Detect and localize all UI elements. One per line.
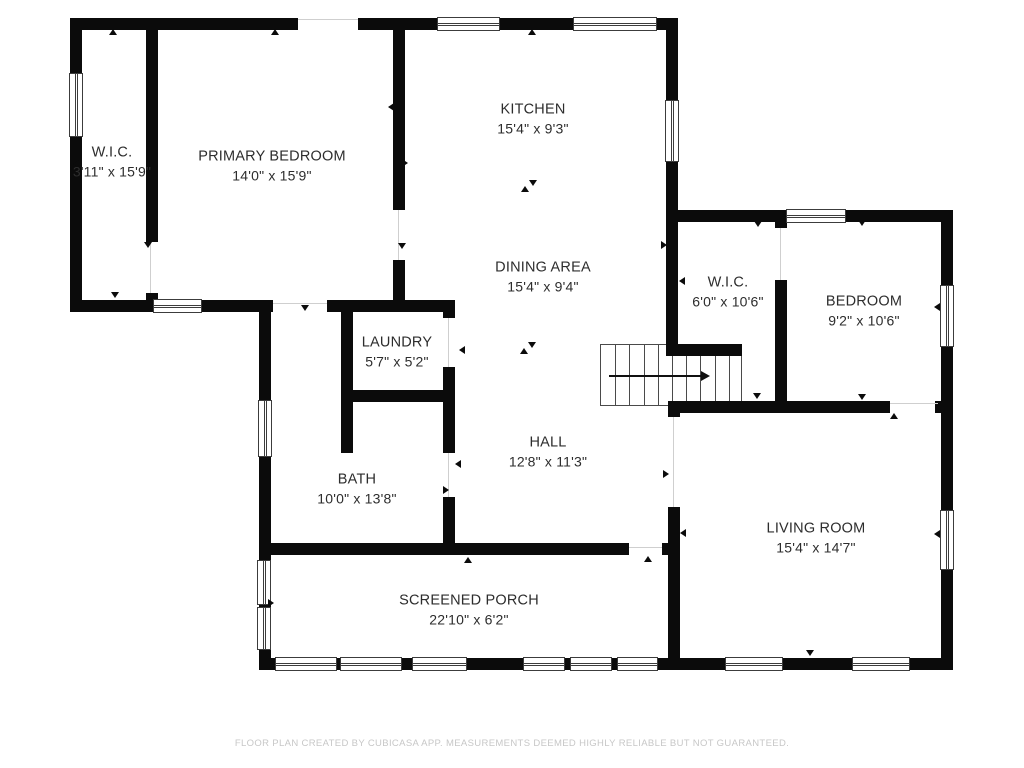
door-tick xyxy=(754,221,762,227)
door-tick xyxy=(661,241,667,249)
window-pane-line xyxy=(574,25,656,26)
door-opening xyxy=(398,210,399,260)
door-tick xyxy=(663,470,669,478)
room-name: DINING AREA xyxy=(495,258,591,278)
wall xyxy=(393,18,405,210)
window-pane-line xyxy=(154,305,201,306)
wall xyxy=(443,300,455,318)
window-pane-line xyxy=(265,561,266,604)
window-pane-line xyxy=(948,511,949,569)
wall xyxy=(666,18,678,356)
room-name: BATH xyxy=(317,470,396,490)
room-dimensions: 15'4" x 14'7" xyxy=(767,539,866,558)
door-tick xyxy=(753,393,761,399)
window-pane-line xyxy=(574,23,656,24)
door-tick xyxy=(388,103,394,111)
window-pane-line xyxy=(266,401,267,456)
wall xyxy=(393,260,405,312)
window xyxy=(523,657,565,671)
room-dimensions: 12'8" x 11'3" xyxy=(509,453,587,472)
door-tick xyxy=(455,460,461,468)
wall xyxy=(662,543,680,555)
window xyxy=(275,657,337,671)
stair-arrow-head-icon xyxy=(701,371,710,381)
window-pane-line xyxy=(75,74,76,136)
stair-direction-arrow xyxy=(609,375,701,377)
window-pane-line xyxy=(726,663,782,664)
window-pane-line xyxy=(673,101,674,161)
floor-plan: W.I.C.3'11" x 15'9"PRIMARY BEDROOM14'0" … xyxy=(0,0,1024,768)
room-name: HALL xyxy=(509,433,587,453)
window-pane-line xyxy=(438,25,499,26)
window-pane-line xyxy=(154,307,201,308)
window-pane-line xyxy=(853,665,909,666)
door-tick xyxy=(679,277,685,285)
room-name: SCREENED PORCH xyxy=(399,591,539,611)
wall xyxy=(70,18,298,30)
room-dimensions: 15'4" x 9'3" xyxy=(497,120,568,139)
window-pane-line xyxy=(265,608,266,649)
wall xyxy=(341,312,353,453)
door-opening xyxy=(150,242,151,293)
wall xyxy=(668,507,680,670)
window xyxy=(257,607,271,650)
room-dimensions: 3'11" x 15'9" xyxy=(73,163,151,182)
window xyxy=(412,657,467,671)
wall xyxy=(775,280,787,406)
room-label-screened-porch: SCREENED PORCH22'10" x 6'2" xyxy=(399,591,539,630)
room-name: BEDROOM xyxy=(826,292,902,312)
window-pane-line xyxy=(571,665,611,666)
door-tick xyxy=(934,530,940,538)
window-pane-line xyxy=(618,663,657,664)
room-dimensions: 22'10" x 6'2" xyxy=(399,611,539,630)
wall xyxy=(146,18,158,242)
door-tick xyxy=(464,557,472,563)
door-tick xyxy=(680,529,686,537)
door-tick xyxy=(806,650,814,656)
wall xyxy=(327,300,455,312)
door-tick xyxy=(934,303,940,311)
disclaimer-text: FLOOR PLAN CREATED BY CUBICASA APP. MEAS… xyxy=(0,738,1024,749)
window-pane-line xyxy=(524,663,564,664)
room-label-dining-area: DINING AREA15'4" x 9'4" xyxy=(495,258,591,297)
door-tick xyxy=(528,29,536,35)
room-dimensions: 9'2" x 10'6" xyxy=(826,312,902,331)
door-tick xyxy=(644,556,652,562)
room-label-hall: HALL12'8" x 11'3" xyxy=(509,433,587,472)
window xyxy=(940,285,954,347)
door-tick xyxy=(347,347,353,355)
wall xyxy=(443,497,455,543)
door-tick xyxy=(268,599,274,607)
door-tick xyxy=(521,186,529,192)
window-pane-line xyxy=(413,663,466,664)
door-opening xyxy=(273,303,327,304)
window-pane-line xyxy=(671,101,672,161)
room-label-living-room: LIVING ROOM15'4" x 14'7" xyxy=(767,519,866,558)
window-pane-line xyxy=(77,74,78,136)
door-tick xyxy=(858,394,866,400)
window-pane-line xyxy=(341,663,401,664)
window-pane-line xyxy=(571,663,611,664)
room-dimensions: 14'0" x 15'9" xyxy=(198,167,346,186)
wall xyxy=(259,543,629,555)
wall xyxy=(941,210,953,670)
wall xyxy=(443,367,455,453)
door-tick xyxy=(459,346,465,354)
window-pane-line xyxy=(853,663,909,664)
window-pane-line xyxy=(948,286,949,346)
room-label-primary-bedroom: PRIMARY BEDROOM14'0" x 15'9" xyxy=(198,147,346,186)
window-pane-line xyxy=(263,561,264,604)
wall xyxy=(666,344,742,356)
room-label-bath: BATH10'0" x 13'8" xyxy=(317,470,396,509)
door-tick xyxy=(271,29,279,35)
door-opening xyxy=(448,318,449,367)
window-pane-line xyxy=(413,665,466,666)
room-label-wic-2: W.I.C.6'0" x 10'6" xyxy=(692,273,763,312)
room-dimensions: 15'4" x 9'4" xyxy=(495,278,591,297)
window-pane-line xyxy=(524,665,564,666)
window xyxy=(665,100,679,162)
door-tick xyxy=(520,348,528,354)
window xyxy=(340,657,402,671)
door-tick xyxy=(402,159,408,167)
door-tick xyxy=(443,486,449,494)
wall xyxy=(670,401,890,413)
door-opening xyxy=(780,228,781,280)
window xyxy=(153,299,202,313)
room-name: KITCHEN xyxy=(497,100,568,120)
window-pane-line xyxy=(946,286,947,346)
room-dimensions: 5'7" x 5'2" xyxy=(362,353,432,372)
door-tick xyxy=(529,180,537,186)
door-tick xyxy=(858,220,866,226)
window xyxy=(437,17,500,31)
window xyxy=(852,657,910,671)
room-label-bedroom: BEDROOM9'2" x 10'6" xyxy=(826,292,902,331)
window xyxy=(725,657,783,671)
door-tick xyxy=(144,242,152,248)
wall xyxy=(668,401,680,417)
room-name: W.I.C. xyxy=(73,143,151,163)
room-label-laundry: LAUNDRY5'7" x 5'2" xyxy=(362,333,432,372)
window-pane-line xyxy=(618,665,657,666)
window-pane-line xyxy=(276,665,336,666)
room-label-kitchen: KITCHEN15'4" x 9'3" xyxy=(497,100,568,139)
room-dimensions: 10'0" x 13'8" xyxy=(317,490,396,509)
room-dimensions: 6'0" x 10'6" xyxy=(692,293,763,312)
room-name: PRIMARY BEDROOM xyxy=(198,147,346,167)
window-pane-line xyxy=(263,608,264,649)
door-tick xyxy=(111,292,119,298)
door-opening xyxy=(890,403,938,404)
room-label-wic-1: W.I.C.3'11" x 15'9" xyxy=(73,143,151,182)
room-name: LIVING ROOM xyxy=(767,519,866,539)
window-pane-line xyxy=(341,665,401,666)
window xyxy=(940,510,954,570)
window-pane-line xyxy=(438,23,499,24)
door-tick xyxy=(398,243,406,249)
door-opening xyxy=(673,417,674,507)
wall xyxy=(341,390,455,402)
door-tick xyxy=(109,29,117,35)
window xyxy=(258,400,272,457)
window-pane-line xyxy=(276,663,336,664)
window-pane-line xyxy=(946,511,947,569)
room-name: W.I.C. xyxy=(692,273,763,293)
door-tick xyxy=(301,305,309,311)
door-opening xyxy=(298,19,358,20)
door-opening xyxy=(629,547,662,548)
window-pane-line xyxy=(787,215,845,216)
window xyxy=(570,657,612,671)
door-tick xyxy=(528,342,536,348)
window-pane-line xyxy=(787,217,845,218)
window-pane-line xyxy=(264,401,265,456)
window xyxy=(617,657,658,671)
room-name: LAUNDRY xyxy=(362,333,432,353)
window xyxy=(69,73,83,137)
window xyxy=(786,209,846,223)
window xyxy=(573,17,657,31)
door-tick xyxy=(890,413,898,419)
window-pane-line xyxy=(726,665,782,666)
